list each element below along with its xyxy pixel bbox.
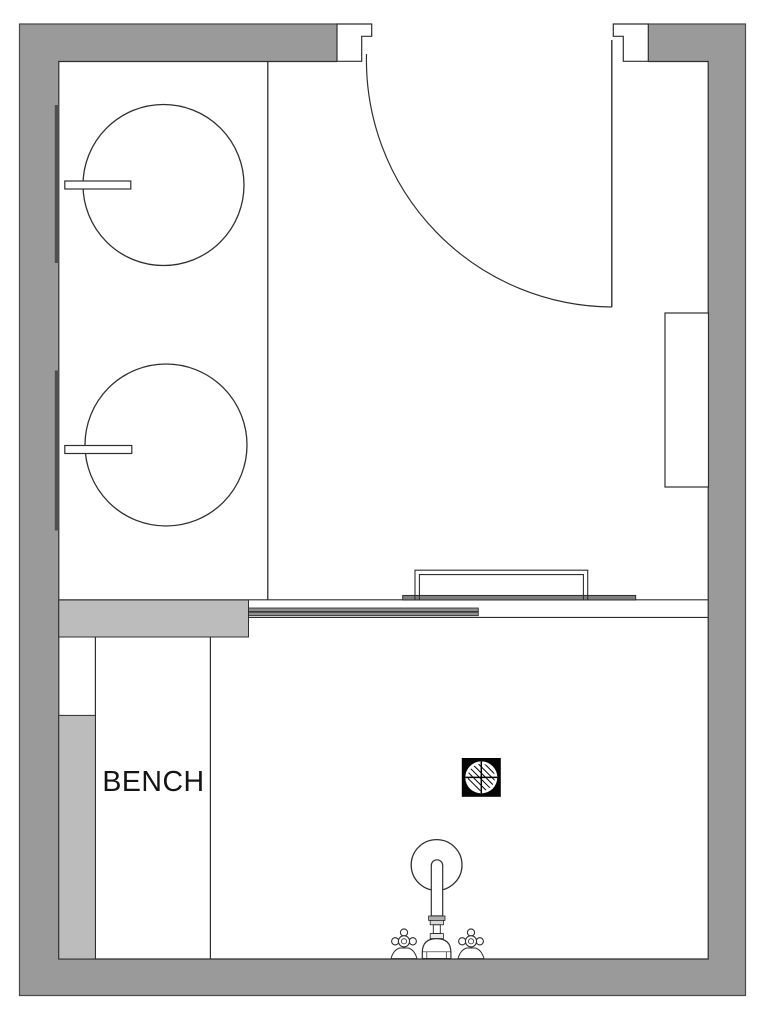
- valve-left-lobe-w: [392, 938, 399, 945]
- valve-left-hub: [398, 936, 409, 947]
- basin-1: [55, 105, 244, 266]
- sliding-panel-upper: [249, 608, 479, 612]
- floor-plan-canvas: BENCH: [0, 0, 766, 1024]
- valve-right: [458, 929, 484, 959]
- basin-2: [55, 364, 247, 531]
- shower-fixture: [391, 840, 484, 959]
- wall-top-right-segment: [648, 24, 745, 62]
- door-swing-arc: [366, 54, 611, 307]
- wall-cabinet: [665, 313, 709, 487]
- valve-right-lobe-e: [476, 938, 483, 945]
- wand-stem: [433, 925, 440, 934]
- basin-2-spout: [65, 446, 132, 454]
- bench-label: BENCH: [102, 766, 204, 798]
- wall-left: [20, 24, 59, 996]
- valve-right-hub: [465, 936, 476, 947]
- valve-left-lobe-e: [409, 938, 416, 945]
- half-wall: [59, 600, 249, 637]
- valve-left-lobe-n: [400, 929, 407, 936]
- fixed-glass-panel: [403, 595, 636, 600]
- wand-collar: [430, 934, 443, 939]
- wall-bracket-2: [55, 371, 59, 531]
- shower-wand: [431, 860, 442, 916]
- valve-right-foot: [458, 948, 484, 959]
- floor-drain: [462, 758, 501, 797]
- wall-right: [708, 24, 745, 996]
- floor-plan: BENCH: [0, 0, 766, 1024]
- wand-band-upper: [429, 916, 445, 920]
- door: [337, 24, 648, 307]
- valve-left: [391, 929, 417, 959]
- door-jamb-right: [613, 24, 648, 61]
- wall-top-left-segment: [20, 24, 338, 62]
- wall-bracket-1: [55, 105, 59, 263]
- bench: BENCH: [59, 637, 211, 959]
- valve-right-lobe-n: [467, 929, 474, 936]
- wall-bottom: [20, 959, 746, 996]
- valve-right-lobe-w: [459, 938, 466, 945]
- basin-1-spout: [65, 181, 131, 189]
- shower-partition: [59, 570, 708, 637]
- valve-left-foot: [391, 948, 417, 959]
- bench-side-ledge: [59, 715, 96, 959]
- sliding-panel-lower: [249, 612, 479, 616]
- wand-band-lower: [430, 920, 443, 924]
